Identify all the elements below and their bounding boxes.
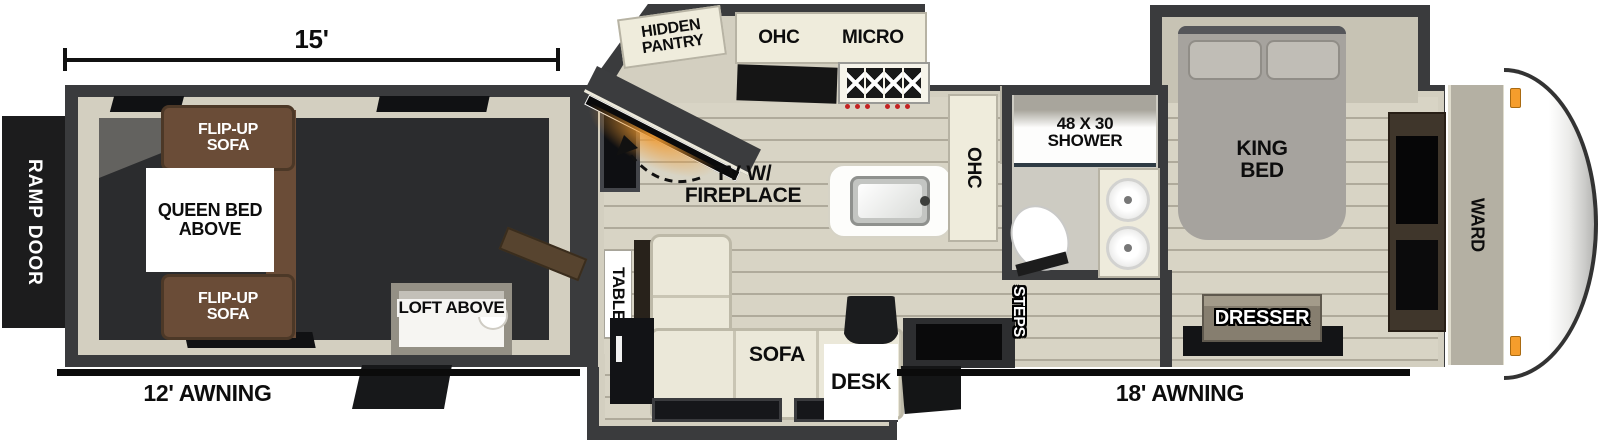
- sink-drain-icon: [1124, 244, 1132, 252]
- dimension-15ft-tick-right: [556, 48, 560, 71]
- stove-knob: [865, 104, 870, 109]
- desk-top: [916, 324, 1002, 360]
- dimension-15ft-line: [63, 58, 560, 62]
- shower: 48 X 30 SHOWER: [1014, 95, 1156, 167]
- ohc-kitchen-label: OHC: [758, 28, 799, 48]
- micro-label: MICRO: [842, 28, 904, 48]
- awning-18ft-line: [897, 369, 1410, 376]
- desk-label-box: DESK: [824, 344, 898, 420]
- burner-icon: [904, 68, 921, 98]
- front-cap: [1504, 68, 1598, 380]
- awning-18ft-label: 18' AWNING: [1080, 382, 1280, 406]
- dimension-15ft-tick-left: [63, 48, 67, 71]
- vanity-sink-top: [1106, 178, 1150, 222]
- bedroom-tv: [1396, 136, 1438, 224]
- desk-surface: [903, 318, 1015, 368]
- ramp-door-label: RAMP DOOR: [24, 159, 44, 286]
- burner-icon: [885, 68, 902, 98]
- steps-label: STEPS: [1010, 286, 1026, 337]
- dresser-top-face: [1204, 296, 1320, 306]
- cooktop: [838, 62, 930, 104]
- awning-12ft-label: 12' AWNING: [105, 382, 310, 406]
- flip-up-sofa-top: FLIP-UP SOFA: [161, 105, 295, 171]
- rv-floorplan: 15' RAMP DOOR FLIP-UP SOFA FLIP-UP SOFA …: [0, 0, 1600, 448]
- sink-faucet-icon: [920, 196, 930, 206]
- loft-above-label-box: LOFT ABOVE: [393, 296, 510, 320]
- table-label: TABLE: [609, 267, 627, 321]
- king-bed-label-box: KING BED: [1200, 136, 1324, 184]
- hidden-pantry-label: HIDDEN PANTRY: [639, 16, 705, 57]
- wardrobe: WARD: [1448, 85, 1506, 365]
- flip-up-sofa-bottom: FLIP-UP SOFA: [161, 274, 295, 340]
- steps-area: STEPS: [1006, 282, 1030, 340]
- entertainment-shelf: [1396, 240, 1438, 310]
- wardrobe-label: WARD: [1468, 198, 1487, 252]
- burner-icon: [866, 68, 883, 98]
- tv-console: [610, 318, 654, 404]
- vanity-sink-bottom: [1106, 226, 1150, 270]
- awning-12ft-line: [57, 369, 580, 376]
- dresser: DRESSER: [1202, 294, 1322, 342]
- garage-skylight: [376, 96, 489, 112]
- king-bed-label: KING BED: [1236, 138, 1287, 181]
- desk-label: DESK: [831, 371, 891, 394]
- sink-drain-icon: [1124, 196, 1132, 204]
- pillow-right: [1266, 40, 1340, 80]
- pillow-left: [1188, 40, 1262, 80]
- kitchen-counter: [736, 64, 837, 103]
- overhead-cabinet-island: OHC: [948, 94, 998, 242]
- sink-basin: [858, 184, 922, 218]
- sofa-label: SOFA: [722, 344, 832, 366]
- stove-knob: [855, 104, 860, 109]
- bed-head-rail: [1178, 26, 1346, 34]
- overhead-cabinet-kitchen: OHC MICRO: [735, 12, 927, 64]
- kitchen-sink: [850, 176, 930, 226]
- marker-light-top: [1510, 88, 1521, 108]
- stove-knob: [885, 104, 890, 109]
- dresser-label: DRESSER: [1215, 308, 1310, 329]
- sofa-slide-window-left: [652, 398, 782, 422]
- bedroom-entertainment-center: [1388, 112, 1446, 332]
- queen-bed-above-callout: QUEEN BED ABOVE: [146, 168, 274, 272]
- stove-knob: [905, 104, 910, 109]
- loft-above-label: LOFT ABOVE: [397, 299, 507, 317]
- flip-up-sofa-top-label: FLIP-UP SOFA: [198, 122, 258, 155]
- marker-light-bottom: [1510, 336, 1521, 356]
- bedroom-partition-wall: [1160, 270, 1172, 367]
- flip-up-sofa-bottom-label: FLIP-UP SOFA: [198, 291, 258, 324]
- ohc-side-label: OHC: [963, 147, 983, 188]
- tv-console-slit: [616, 336, 622, 362]
- shower-label: 48 X 30 SHOWER: [1048, 115, 1123, 150]
- desk-chair: [843, 296, 899, 344]
- burner-icon: [847, 68, 864, 98]
- queen-bed-above-label: QUEEN BED ABOVE: [158, 201, 262, 238]
- dimension-15ft-label: 15': [63, 26, 560, 54]
- stove-knob: [895, 104, 900, 109]
- tv-fireplace-label: TV W/ FIREPLACE: [668, 163, 818, 206]
- stove-knob: [845, 104, 850, 109]
- ramp-door: RAMP DOOR: [2, 116, 66, 328]
